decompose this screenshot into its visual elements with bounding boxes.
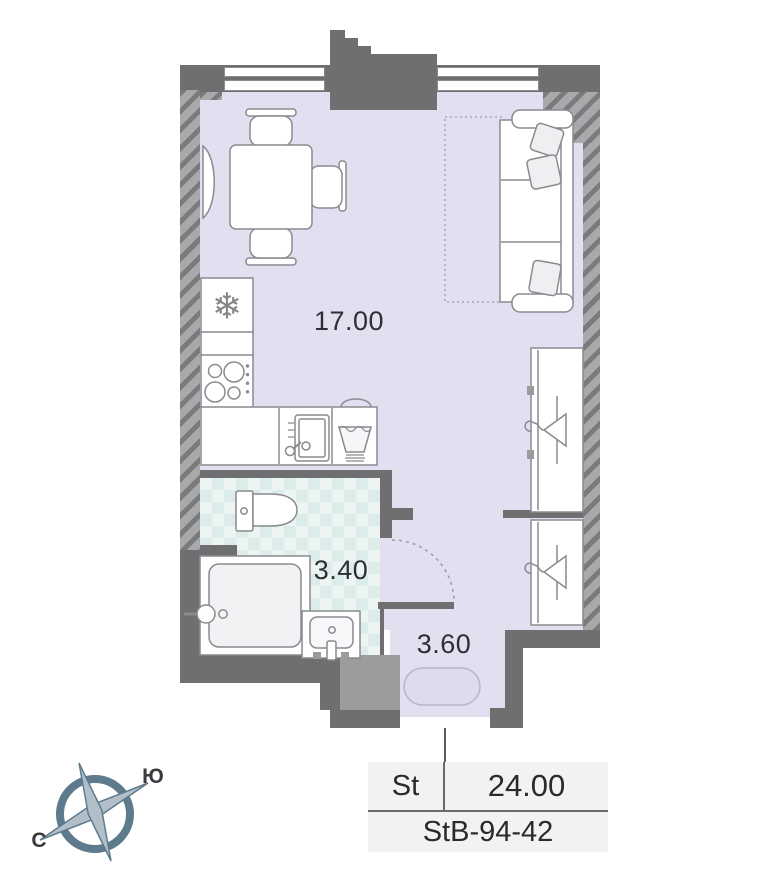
bathroom-top-wall — [200, 470, 392, 478]
left-wall-hatched — [180, 90, 200, 550]
bathroom-bottom-wall — [180, 655, 340, 683]
compass-needle-south-north — [40, 783, 148, 840]
window-left-outer-pane — [224, 67, 325, 77]
area-label-bathroom: 3.40 — [314, 555, 369, 586]
unit-info-top-row: St 24.00 — [368, 762, 608, 812]
bathroom-right-wall — [380, 470, 392, 538]
duct-shaft — [340, 655, 400, 712]
bottom-wall-connector — [320, 683, 340, 710]
window-left-inner-pane — [224, 80, 325, 91]
left-wall-lower — [180, 548, 200, 660]
unit-id-label: StB-94-42 — [368, 812, 608, 852]
window-right-inner-pane — [437, 80, 539, 91]
compass-ring — [60, 779, 130, 849]
area-label-hallway: 3.60 — [417, 629, 472, 660]
right-corner-block-hatched — [543, 92, 600, 143]
right-wall-hatched — [583, 143, 600, 630]
compass-north-label: С — [31, 829, 46, 852]
entry-wall-left — [330, 710, 400, 728]
compass-south-label: Ю — [142, 765, 164, 788]
hall-wall-stub-upper — [392, 508, 413, 520]
wardrobe-divider-stub — [503, 510, 583, 518]
bathroom-right-wall-lower — [380, 609, 384, 655]
left-corner-hatched — [200, 92, 222, 100]
right-lower-wall-horizontal — [505, 630, 600, 648]
area-label-living: 17.00 — [314, 306, 384, 337]
unit-area-value: 24.00 — [445, 762, 608, 810]
hall-wall-stub-lower — [378, 602, 454, 609]
unit-type-label: St — [368, 762, 445, 810]
bathroom-wall-protrusion — [200, 545, 237, 557]
compass-rose: Ю С — [31, 763, 163, 861]
floor-plan: ❄ — [0, 0, 760, 891]
leader-line — [444, 728, 446, 762]
compass-needle-cross — [79, 763, 111, 861]
window-right-outer-pane — [437, 67, 539, 77]
unit-info-box: St 24.00 StB-94-42 — [368, 762, 608, 852]
